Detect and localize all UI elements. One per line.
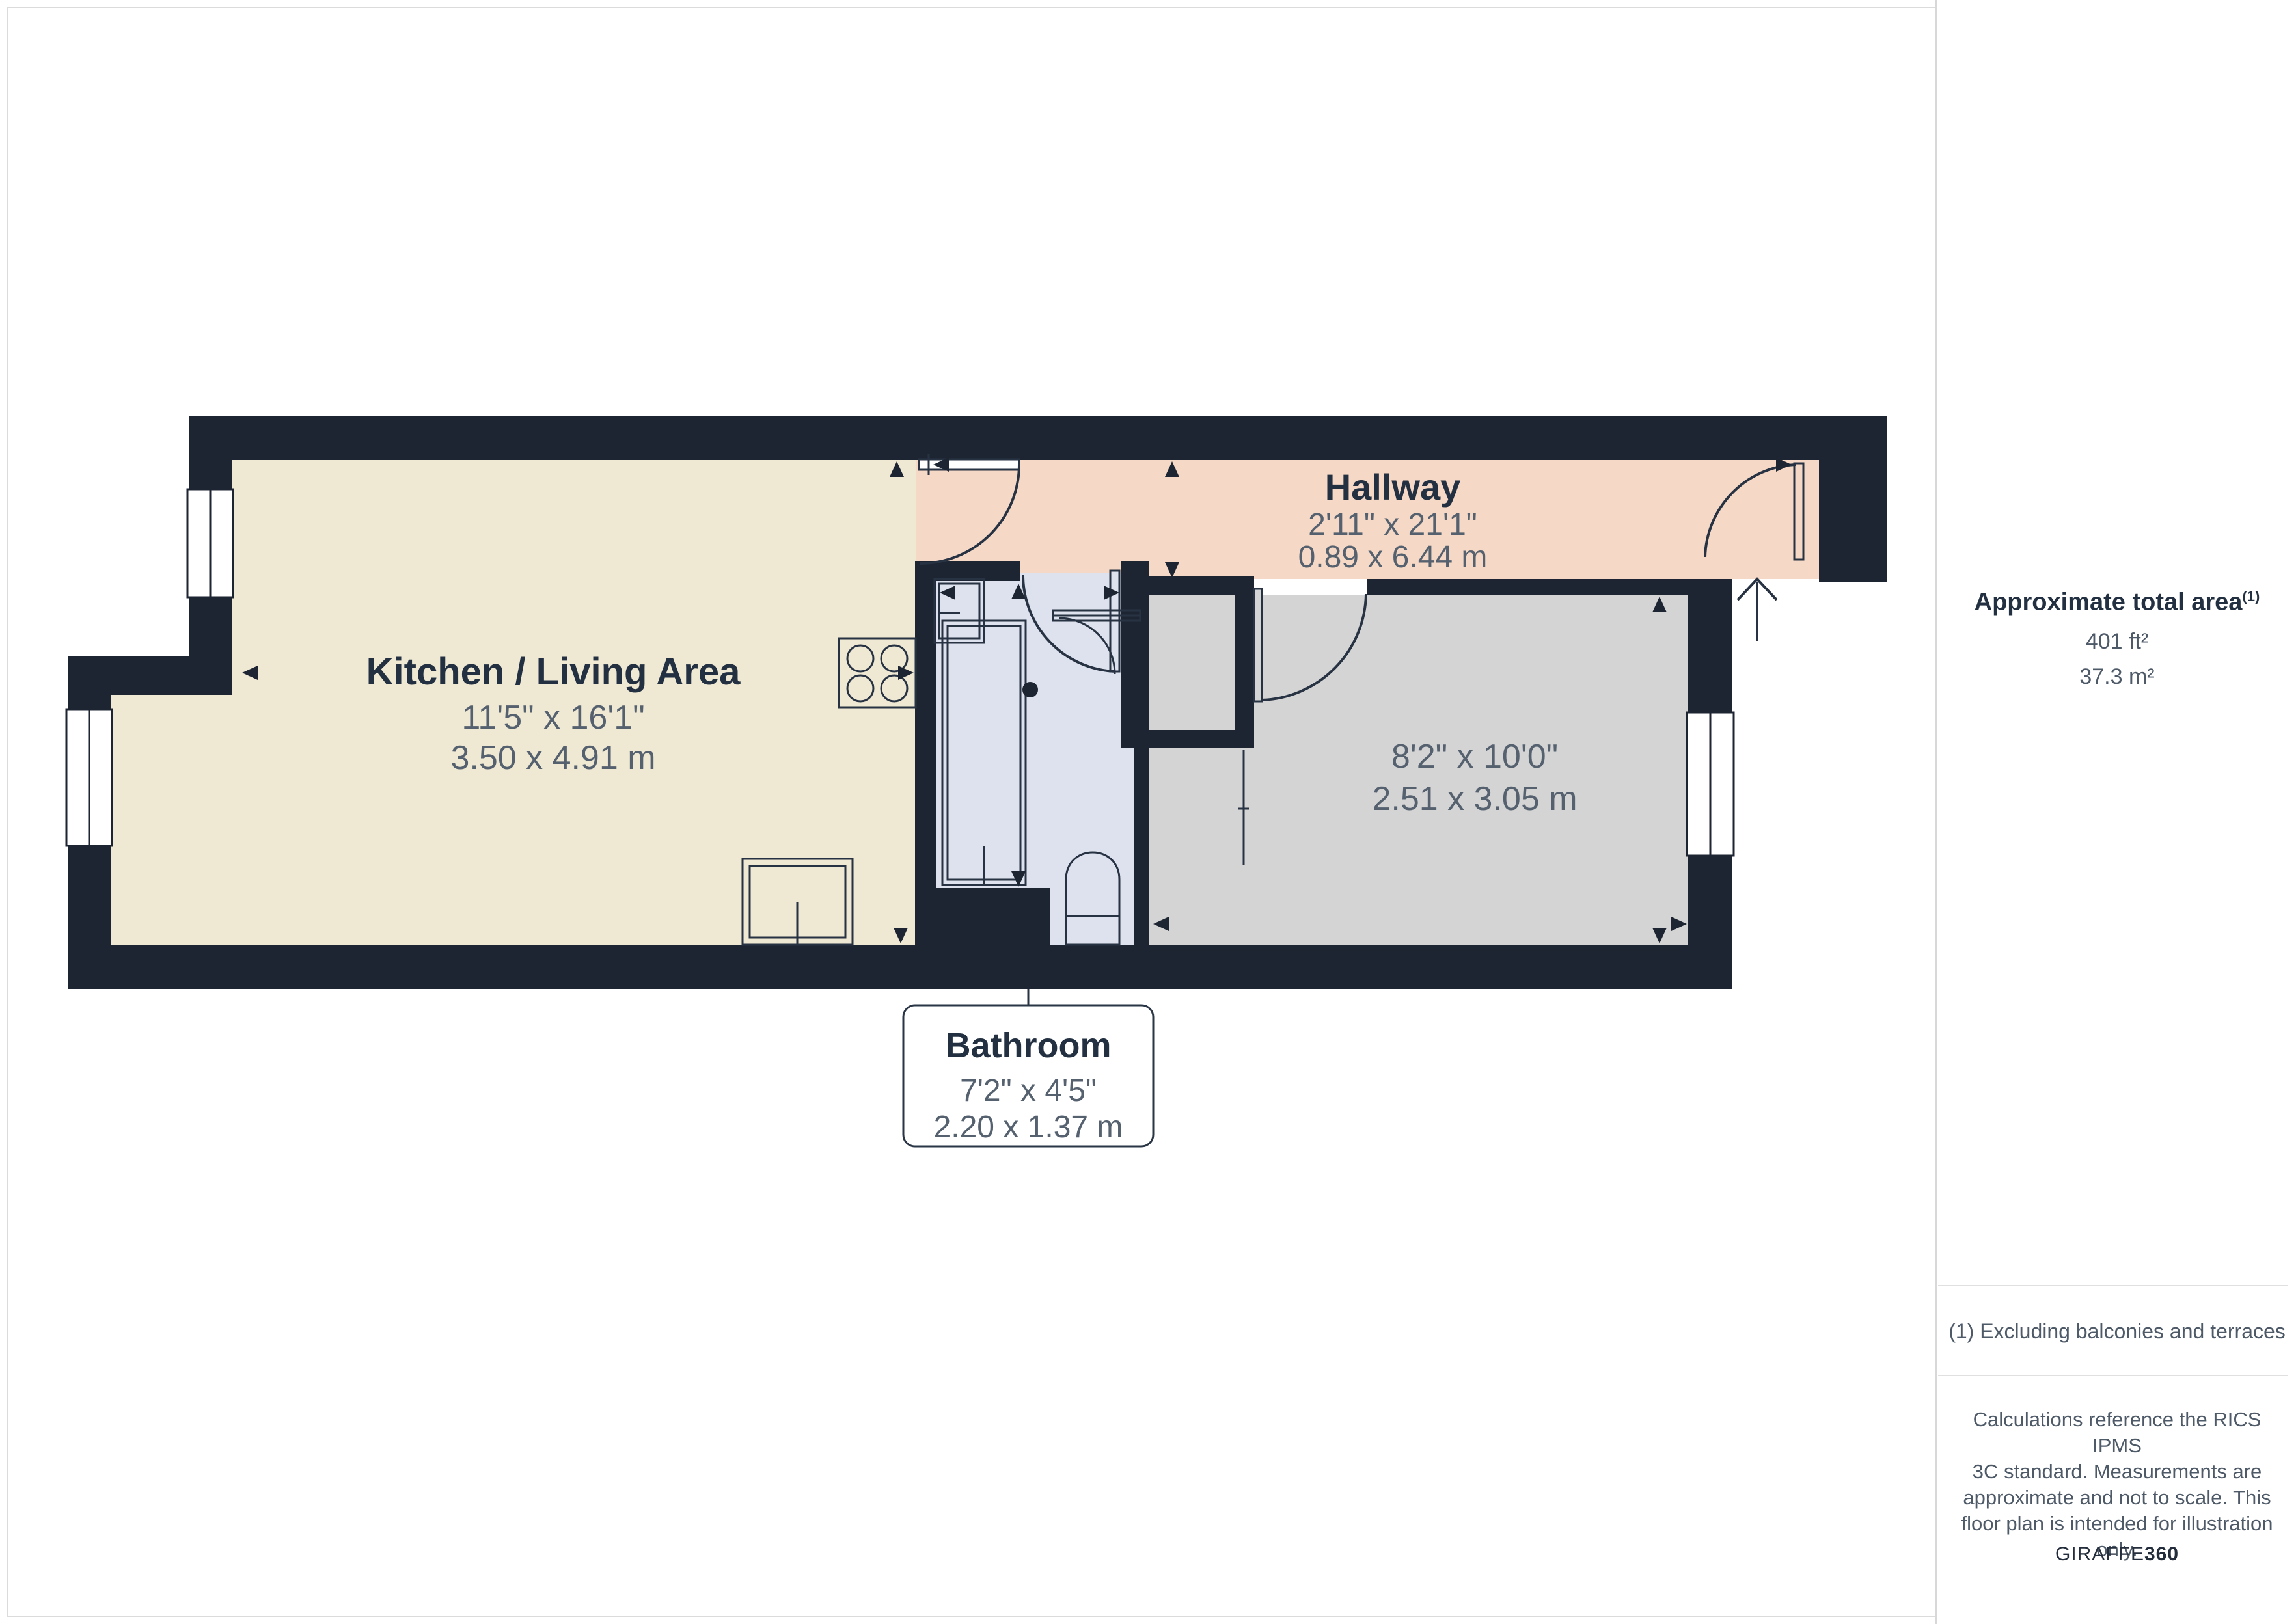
closet-floor — [1149, 595, 1235, 730]
room-dims-imperial: 8'2" x 10'0" — [1391, 738, 1558, 776]
bathroom-dims-imperial: 7'2" x 4'5" — [960, 1074, 1097, 1108]
kitchen-dims-metric: 3.50 x 4.91 m — [450, 739, 655, 777]
window-icon — [66, 709, 112, 846]
wall-bathroom-closet — [1121, 561, 1149, 748]
wall-closet-right — [1235, 595, 1254, 748]
window-icon — [1687, 712, 1734, 856]
hallway-dims-imperial: 2'11" x 21'1" — [1308, 507, 1477, 542]
hallway-label: Hallway — [1325, 467, 1461, 507]
total-area-footnote-marker: (1) — [2242, 588, 2260, 604]
footnote-text: (1) Excluding balconies and terraces — [1937, 1319, 2296, 1344]
disclaimer-line: floor plan is intended for illustration — [1950, 1511, 2284, 1537]
wall-kitchen-bathroom — [915, 561, 936, 945]
floorplan-page: Kitchen / Living Area 11'5" x 16'1" 3.50… — [0, 0, 2296, 1624]
disclaimer-text: Calculations reference the RICS IPMS 3C … — [1950, 1407, 2284, 1563]
room-fills — [111, 460, 1819, 945]
total-area-m: 37.3 m² — [1937, 661, 2296, 692]
total-area-ft: 401 ft² — [1937, 626, 2296, 657]
total-area-title: Approximate total area(1) — [1937, 582, 2296, 617]
sidebar-divider — [1938, 1285, 2288, 1286]
kitchen-floor-lower — [111, 695, 232, 945]
bathroom-dims-metric: 2.20 x 1.37 m — [934, 1110, 1123, 1144]
wall-bathroom-room — [1134, 748, 1149, 945]
kitchen-label: Kitchen / Living Area — [366, 651, 741, 693]
logo-text-secondary: 360 — [2144, 1543, 2179, 1565]
total-area-block: Approximate total area(1) 401 ft² 37.3 m… — [1937, 582, 2296, 692]
sidebar-divider — [1938, 1375, 2288, 1376]
disclaimer-line: approximate and not to scale. This — [1950, 1485, 2284, 1511]
room-floor-extension — [1149, 748, 1254, 945]
logo-text-primary: GIRAFFE — [2055, 1543, 2144, 1565]
info-sidebar: Approximate total area(1) 401 ft² 37.3 m… — [1935, 0, 2296, 1624]
disclaimer-line: Calculations reference the RICS IPMS — [1950, 1407, 2284, 1459]
entrance-arrow-icon — [1738, 579, 1777, 641]
giraffe360-logo: GIRAFFE360 — [1937, 1543, 2296, 1565]
hallway-dims-metric: 0.89 x 6.44 m — [1298, 540, 1488, 575]
wall-bathroom-block — [936, 888, 1050, 945]
wall-room-top — [1367, 579, 1688, 595]
total-area-title-text: Approximate total area — [1975, 589, 2243, 616]
kitchen-dims-imperial: 11'5" x 16'1" — [461, 699, 644, 737]
disclaimer-line: 3C standard. Measurements are — [1950, 1459, 2284, 1485]
wall-top — [189, 416, 1887, 460]
floor-plan: Kitchen / Living Area 11'5" x 16'1" 3.50… — [0, 0, 1935, 1624]
bathroom-callout: Bathroom 7'2" x 4'5" 2.20 x 1.37 m — [903, 989, 1153, 1146]
room-dims-metric: 2.51 x 3.05 m — [1372, 780, 1577, 818]
wall-entry-right — [1819, 460, 1887, 582]
wall-closet-top — [1149, 576, 1254, 595]
wall-closet-bottom — [1121, 730, 1254, 748]
bathroom-label: Bathroom — [946, 1026, 1112, 1065]
wall-bottom — [68, 945, 1732, 989]
window-icon — [187, 489, 233, 597]
